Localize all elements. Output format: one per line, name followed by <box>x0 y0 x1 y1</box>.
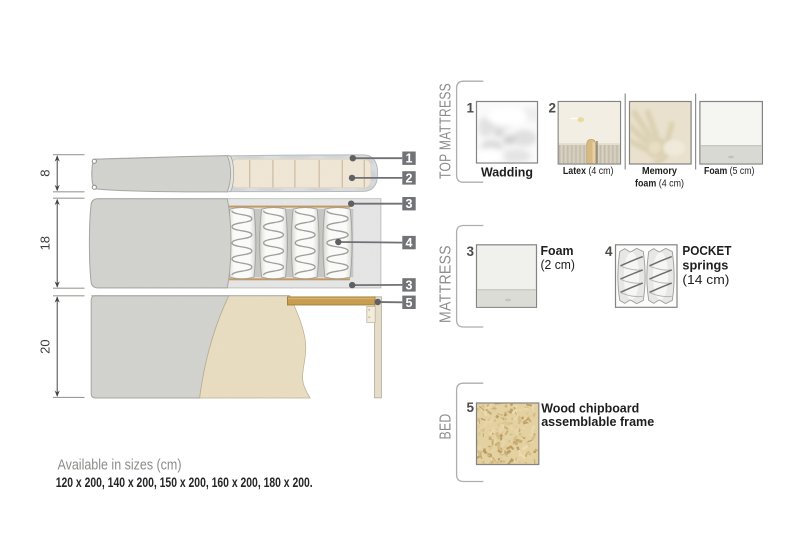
svg-text:POCKET: POCKET <box>682 244 731 258</box>
svg-text:4: 4 <box>406 236 413 250</box>
svg-text:TOP MATTRESS: TOP MATTRESS <box>437 83 454 179</box>
svg-text:Wood chipboard: Wood chipboard <box>541 402 639 416</box>
svg-text:2: 2 <box>548 101 556 116</box>
svg-text:foam (4 cm): foam (4 cm) <box>635 179 684 190</box>
svg-text:3: 3 <box>406 278 413 292</box>
svg-text:springs: springs <box>682 259 728 273</box>
svg-text:1: 1 <box>406 152 413 166</box>
svg-text:18: 18 <box>38 236 53 250</box>
svg-text:4: 4 <box>605 244 613 259</box>
svg-text:5: 5 <box>466 400 474 415</box>
svg-text:MATTRESS: MATTRESS <box>437 245 454 323</box>
svg-text:1: 1 <box>466 101 474 116</box>
svg-text:Wadding: Wadding <box>481 166 533 180</box>
svg-text:8: 8 <box>38 170 53 177</box>
svg-text:2: 2 <box>406 171 413 185</box>
svg-text:3: 3 <box>466 244 474 259</box>
svg-text:20: 20 <box>38 339 53 353</box>
svg-text:Foam (5 cm): Foam (5 cm) <box>704 166 754 177</box>
svg-text:Latex (4 cm): Latex (4 cm) <box>563 166 614 177</box>
svg-text:120 x 200, 140 x 200, 150 x 20: 120 x 200, 140 x 200, 150 x 200, 160 x 2… <box>56 474 313 490</box>
svg-text:5: 5 <box>406 296 413 310</box>
svg-text:Available in sizes (cm): Available in sizes (cm) <box>58 458 182 474</box>
svg-text:Foam: Foam <box>541 244 574 258</box>
svg-text:(14 cm): (14 cm) <box>682 273 729 287</box>
svg-text:Memory: Memory <box>642 166 677 177</box>
svg-text:BED: BED <box>437 414 454 440</box>
svg-text:(2 cm): (2 cm) <box>541 258 576 272</box>
svg-text:assemblable frame: assemblable frame <box>541 415 654 429</box>
svg-text:3: 3 <box>406 197 413 211</box>
